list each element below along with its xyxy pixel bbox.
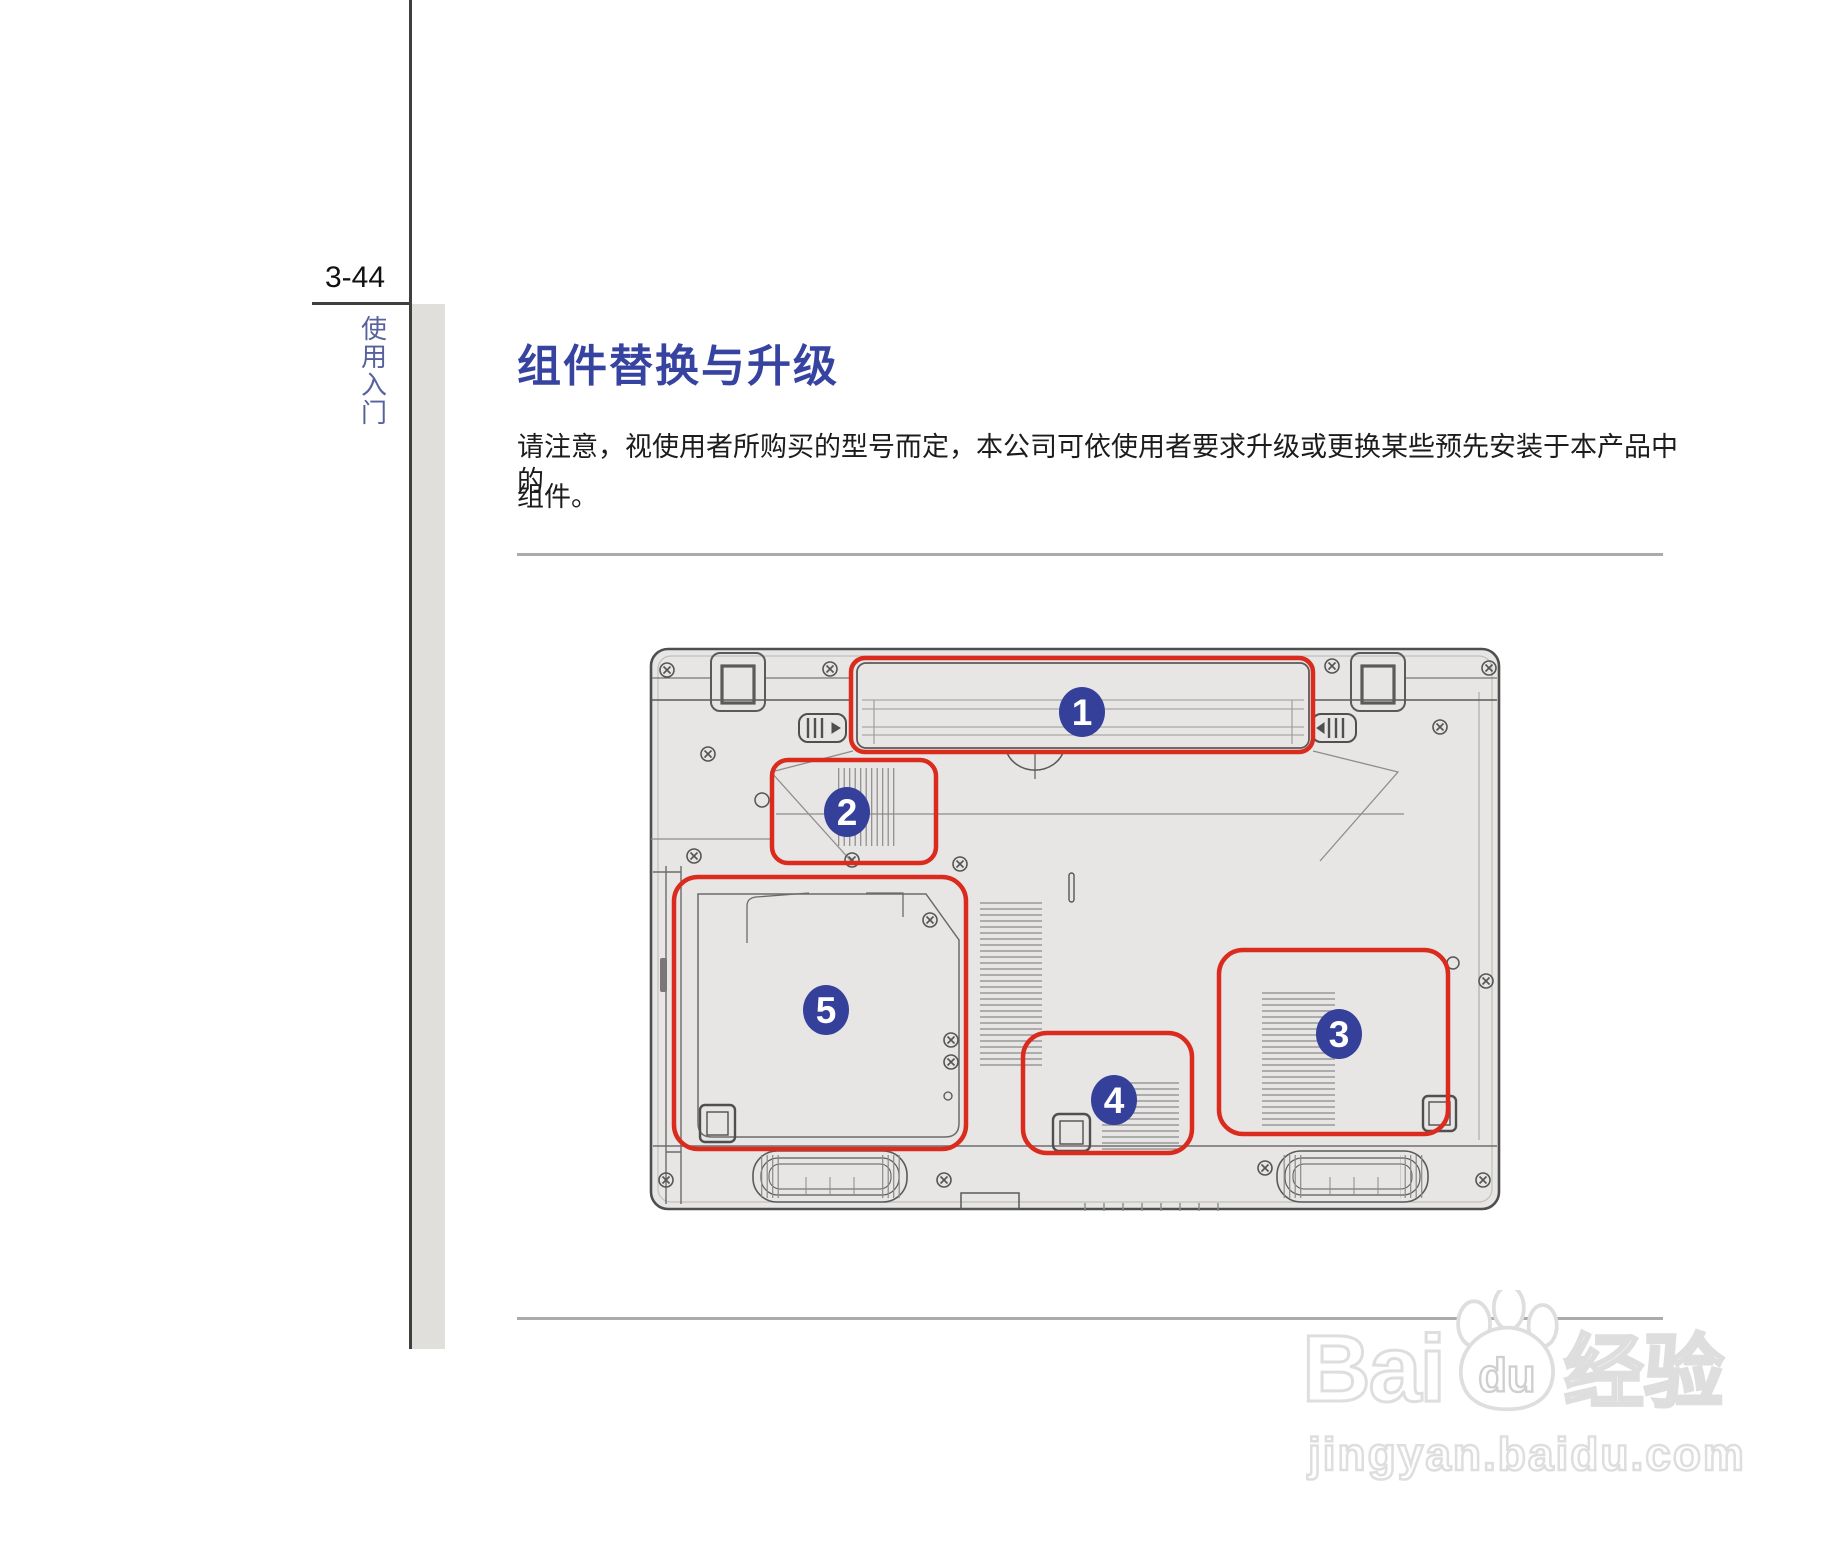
callout-2: 2 [824, 787, 870, 837]
watermark-logo-row: Bai du 经验 [1302, 1290, 1746, 1417]
watermark-url: jingyan.baidu.com [1308, 1427, 1746, 1481]
svg-text:4: 4 [1104, 1080, 1125, 1121]
baidu-jingyan-watermark: Bai du 经验 jingyan.baidu.com [1302, 1290, 1746, 1481]
callout-1: 1 [1059, 687, 1105, 737]
watermark-du-text: du [1478, 1348, 1535, 1401]
svg-text:1: 1 [1072, 692, 1093, 733]
section-label-vertical: 使用入门 [356, 316, 392, 428]
page-title: 组件替换与升级 [517, 330, 839, 394]
intro-paragraph: 请注意，视使用者所购买的型号而定，本公司可依使用者要求升级或更换某些预先安装于本… [517, 430, 1682, 530]
vent-center [980, 902, 1042, 1068]
svg-text:2: 2 [837, 792, 858, 833]
watermark-bai-text: Bai [1302, 1322, 1444, 1417]
callout-5: 5 [803, 985, 849, 1035]
callout-4: 4 [1091, 1075, 1137, 1125]
manual-page: 3-44 使用入门 组件替换与升级 请注意，视使用者所购买的型号而定，本公司可依… [0, 0, 1844, 1548]
page-number-rule [312, 302, 410, 305]
gutter-gray-bar [412, 304, 445, 1349]
divider-top [517, 553, 1663, 556]
svg-text:5: 5 [816, 990, 837, 1031]
page-number: 3-44 [255, 261, 385, 295]
paragraph-line-1: 请注意，视使用者所购买的型号而定，本公司可依使用者要求升级或更换某些预先安装于本… [517, 430, 1682, 480]
baidu-paw-icon: du [1440, 1290, 1572, 1419]
watermark-cn-text: 经验 [1564, 1329, 1724, 1417]
paragraph-line-2: 组件。 [517, 480, 1682, 530]
vent-region-3 [1262, 990, 1335, 1128]
laptop-bottom-diagram: 1 2 3 4 5 [640, 635, 1520, 1235]
svg-text:3: 3 [1329, 1014, 1350, 1055]
callout-3: 3 [1316, 1009, 1362, 1059]
